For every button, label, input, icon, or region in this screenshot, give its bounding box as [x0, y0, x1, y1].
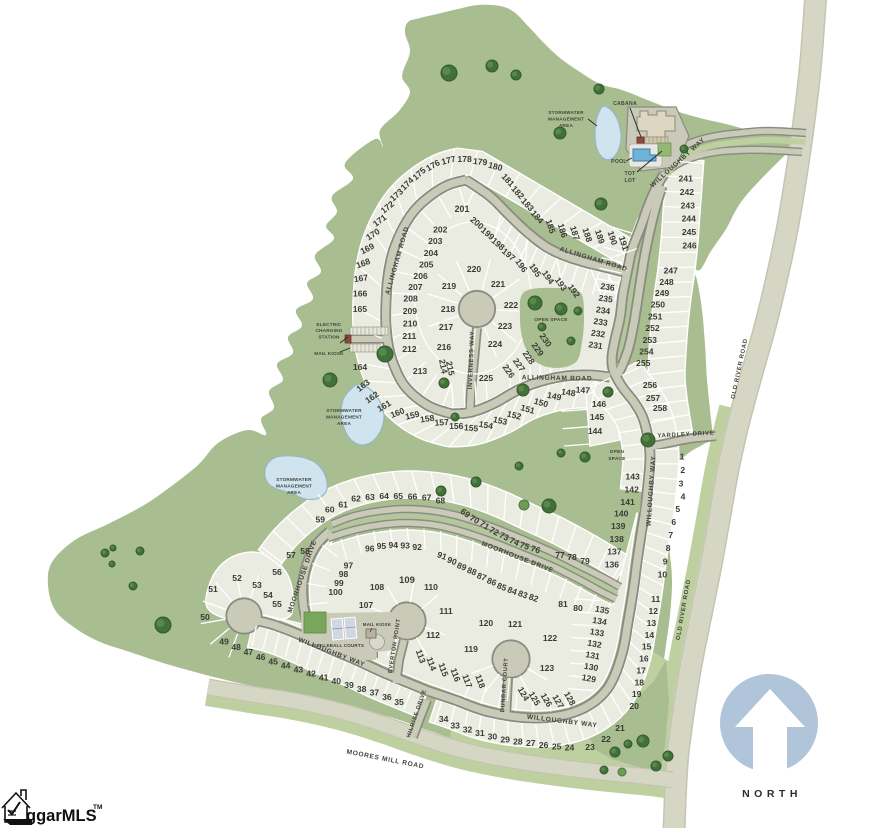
svg-text:121: 121: [508, 619, 523, 629]
svg-text:26: 26: [539, 740, 549, 750]
svg-text:ELECTRIC: ELECTRIC: [316, 322, 341, 327]
svg-text:MAIL KIOSK: MAIL KIOSK: [314, 351, 344, 356]
svg-text:CABANA: CABANA: [613, 101, 637, 107]
svg-text:46: 46: [256, 652, 266, 662]
svg-text:221: 221: [491, 279, 506, 289]
svg-text:13: 13: [647, 618, 657, 628]
svg-text:15: 15: [642, 642, 652, 652]
svg-text:63: 63: [365, 492, 375, 502]
svg-text:52: 52: [232, 573, 242, 583]
svg-text:4: 4: [681, 492, 686, 502]
svg-text:216: 216: [437, 342, 452, 352]
svg-text:201: 201: [455, 204, 470, 214]
svg-text:205: 205: [419, 260, 434, 270]
svg-text:MAIL KIOSK: MAIL KIOSK: [363, 622, 392, 627]
svg-text:167: 167: [353, 272, 369, 284]
svg-text:178: 178: [457, 154, 472, 164]
svg-text:51: 51: [208, 584, 218, 594]
svg-text:43: 43: [294, 665, 304, 675]
svg-text:TM: TM: [93, 804, 102, 811]
svg-text:143: 143: [625, 472, 640, 482]
svg-text:212: 212: [402, 344, 417, 354]
svg-text:14: 14: [645, 630, 655, 640]
svg-text:34: 34: [439, 714, 449, 724]
svg-text:158: 158: [419, 413, 435, 425]
svg-text:10: 10: [658, 569, 668, 579]
svg-text:222: 222: [504, 300, 519, 310]
svg-text:110: 110: [424, 582, 438, 592]
svg-text:18: 18: [635, 677, 645, 687]
svg-text:ALLINGHAM ROAD: ALLINGHAM ROAD: [522, 374, 593, 382]
svg-text:21: 21: [615, 723, 625, 733]
svg-text:157: 157: [434, 417, 449, 428]
svg-text:108: 108: [370, 582, 385, 592]
svg-text:252: 252: [645, 323, 660, 333]
svg-text:25: 25: [552, 742, 562, 752]
svg-text:209: 209: [403, 306, 418, 316]
svg-text:78: 78: [567, 552, 577, 562]
svg-text:243: 243: [681, 200, 696, 210]
svg-text:142: 142: [625, 485, 640, 495]
svg-text:ggarMLS: ggarMLS: [26, 807, 97, 825]
svg-text:49: 49: [219, 637, 229, 647]
svg-text:164: 164: [353, 362, 368, 372]
svg-text:23: 23: [585, 742, 595, 752]
svg-text:234: 234: [595, 304, 611, 316]
svg-text:119: 119: [464, 644, 478, 654]
svg-text:220: 220: [467, 264, 482, 274]
svg-text:255: 255: [636, 358, 651, 368]
svg-text:STORMWATER: STORMWATER: [276, 477, 312, 482]
svg-text:146: 146: [592, 399, 607, 409]
svg-text:OPEN SPACE: OPEN SPACE: [534, 317, 567, 322]
svg-text:148: 148: [561, 386, 577, 398]
svg-text:42: 42: [306, 668, 316, 678]
svg-text:120: 120: [479, 618, 494, 628]
svg-text:65: 65: [394, 491, 404, 501]
svg-text:137: 137: [607, 547, 622, 557]
svg-text:253: 253: [643, 335, 658, 345]
svg-text:LOT: LOT: [624, 178, 636, 184]
svg-text:107: 107: [359, 600, 374, 610]
svg-text:19: 19: [632, 689, 642, 699]
svg-text:AREA: AREA: [337, 421, 351, 426]
svg-text:77: 77: [555, 550, 565, 560]
svg-text:219: 219: [442, 281, 457, 291]
svg-text:67: 67: [422, 492, 432, 502]
svg-text:28: 28: [513, 737, 523, 747]
svg-text:109: 109: [399, 574, 415, 585]
svg-text:48: 48: [231, 642, 241, 652]
svg-text:7: 7: [668, 530, 673, 540]
svg-text:218: 218: [441, 304, 456, 314]
svg-text:11: 11: [651, 594, 660, 604]
svg-text:204: 204: [424, 248, 439, 258]
svg-text:9: 9: [663, 556, 668, 566]
svg-text:202: 202: [433, 225, 448, 235]
svg-text:27: 27: [526, 738, 536, 748]
svg-text:39: 39: [344, 680, 354, 690]
svg-text:206: 206: [413, 271, 428, 281]
svg-text:140: 140: [614, 508, 629, 518]
svg-text:24: 24: [565, 743, 575, 753]
svg-text:44: 44: [281, 661, 291, 671]
svg-text:2: 2: [680, 465, 685, 475]
svg-text:258: 258: [653, 403, 668, 413]
svg-text:16: 16: [639, 654, 649, 664]
svg-text:249: 249: [655, 288, 670, 298]
svg-text:17: 17: [636, 665, 646, 675]
svg-text:211: 211: [402, 331, 416, 341]
svg-text:166: 166: [353, 289, 368, 299]
svg-text:22: 22: [601, 734, 611, 744]
svg-text:61: 61: [338, 500, 348, 510]
svg-text:241: 241: [679, 174, 694, 184]
svg-text:POOL: POOL: [611, 159, 627, 165]
svg-text:55: 55: [272, 599, 282, 609]
svg-text:203: 203: [428, 236, 443, 246]
svg-text:100: 100: [328, 587, 343, 597]
svg-text:20: 20: [629, 701, 639, 711]
svg-text:66: 66: [408, 492, 418, 502]
svg-text:217: 217: [439, 322, 454, 332]
svg-text:165: 165: [353, 304, 368, 314]
svg-text:3: 3: [679, 478, 684, 488]
svg-text:62: 62: [351, 494, 361, 504]
svg-text:145: 145: [590, 412, 605, 422]
svg-text:57: 57: [286, 550, 296, 560]
svg-text:235: 235: [598, 293, 614, 305]
svg-text:139: 139: [611, 521, 626, 531]
svg-text:213: 213: [413, 366, 428, 376]
svg-text:12: 12: [649, 606, 659, 616]
svg-text:136: 136: [605, 560, 620, 570]
svg-text:47: 47: [244, 647, 254, 657]
svg-text:CHARGING: CHARGING: [315, 328, 342, 333]
svg-text:248: 248: [659, 277, 674, 287]
svg-text:1: 1: [680, 452, 685, 462]
svg-text:50: 50: [200, 612, 210, 622]
svg-text:AREA: AREA: [287, 490, 301, 495]
svg-text:246: 246: [682, 240, 697, 250]
svg-text:59: 59: [316, 515, 326, 525]
svg-text:93: 93: [400, 541, 410, 551]
svg-text:225: 225: [479, 373, 494, 383]
svg-text:251: 251: [648, 311, 663, 321]
svg-text:56: 56: [272, 567, 282, 577]
svg-text:40: 40: [332, 676, 342, 686]
svg-text:250: 250: [651, 300, 666, 310]
svg-text:233: 233: [593, 316, 609, 328]
svg-text:41: 41: [319, 672, 329, 682]
svg-text:179: 179: [473, 156, 489, 167]
svg-text:123: 123: [540, 663, 555, 673]
svg-text:144: 144: [588, 426, 603, 436]
svg-text:45: 45: [268, 656, 278, 666]
svg-text:36: 36: [382, 692, 392, 702]
svg-text:111: 111: [439, 606, 453, 616]
svg-text:OPEN: OPEN: [610, 449, 625, 454]
svg-text:STATION: STATION: [318, 334, 340, 339]
svg-text:155: 155: [464, 422, 479, 433]
svg-text:NORTH: NORTH: [742, 788, 802, 800]
svg-text:29: 29: [500, 735, 510, 745]
svg-text:37: 37: [370, 688, 380, 698]
svg-text:257: 257: [646, 393, 661, 403]
svg-text:254: 254: [639, 346, 654, 356]
svg-text:64: 64: [379, 491, 389, 501]
svg-text:79: 79: [580, 556, 590, 566]
svg-text:245: 245: [682, 227, 697, 237]
svg-text:31: 31: [475, 728, 485, 738]
svg-text:236: 236: [600, 281, 616, 293]
svg-text:95: 95: [377, 541, 387, 551]
svg-text:81: 81: [558, 599, 568, 609]
svg-text:SPACE: SPACE: [608, 456, 625, 461]
svg-text:MANAGEMENT: MANAGEMENT: [326, 415, 362, 420]
svg-text:33: 33: [450, 720, 460, 730]
svg-text:53: 53: [252, 580, 262, 590]
svg-text:MANAGEMENT: MANAGEMENT: [548, 117, 584, 122]
svg-text:35: 35: [394, 697, 404, 707]
svg-text:207: 207: [408, 282, 423, 292]
svg-text:112: 112: [426, 630, 440, 640]
svg-text:92: 92: [412, 542, 422, 552]
svg-text:32: 32: [463, 724, 473, 734]
svg-text:122: 122: [543, 633, 558, 643]
svg-text:244: 244: [682, 214, 697, 224]
svg-text:147: 147: [575, 385, 590, 396]
svg-text:247: 247: [664, 266, 679, 276]
svg-text:156: 156: [449, 421, 464, 431]
svg-text:231: 231: [588, 339, 604, 351]
svg-text:6: 6: [671, 517, 676, 527]
svg-text:80: 80: [573, 603, 583, 613]
svg-text:224: 224: [488, 339, 503, 349]
svg-text:30: 30: [488, 732, 498, 742]
svg-text:8: 8: [666, 543, 671, 553]
svg-text:141: 141: [620, 497, 635, 507]
svg-text:94: 94: [389, 540, 399, 550]
svg-text:256: 256: [643, 380, 658, 390]
svg-text:38: 38: [357, 684, 367, 694]
svg-text:138: 138: [610, 534, 625, 544]
svg-text:STORMWATER: STORMWATER: [548, 110, 584, 115]
svg-text:242: 242: [680, 187, 695, 197]
svg-text:232: 232: [590, 328, 606, 340]
svg-text:STORMWATER: STORMWATER: [326, 408, 362, 413]
svg-text:MANAGEMENT: MANAGEMENT: [276, 484, 312, 489]
svg-text:96: 96: [365, 543, 375, 553]
svg-text:210: 210: [403, 319, 418, 329]
svg-text:5: 5: [675, 504, 680, 514]
svg-text:TOT: TOT: [625, 171, 637, 177]
svg-text:68: 68: [436, 495, 446, 505]
svg-text:223: 223: [498, 321, 513, 331]
svg-text:PICKLEBALL COURTS: PICKLEBALL COURTS: [312, 643, 364, 648]
svg-text:60: 60: [325, 505, 335, 515]
svg-text:208: 208: [403, 294, 418, 304]
